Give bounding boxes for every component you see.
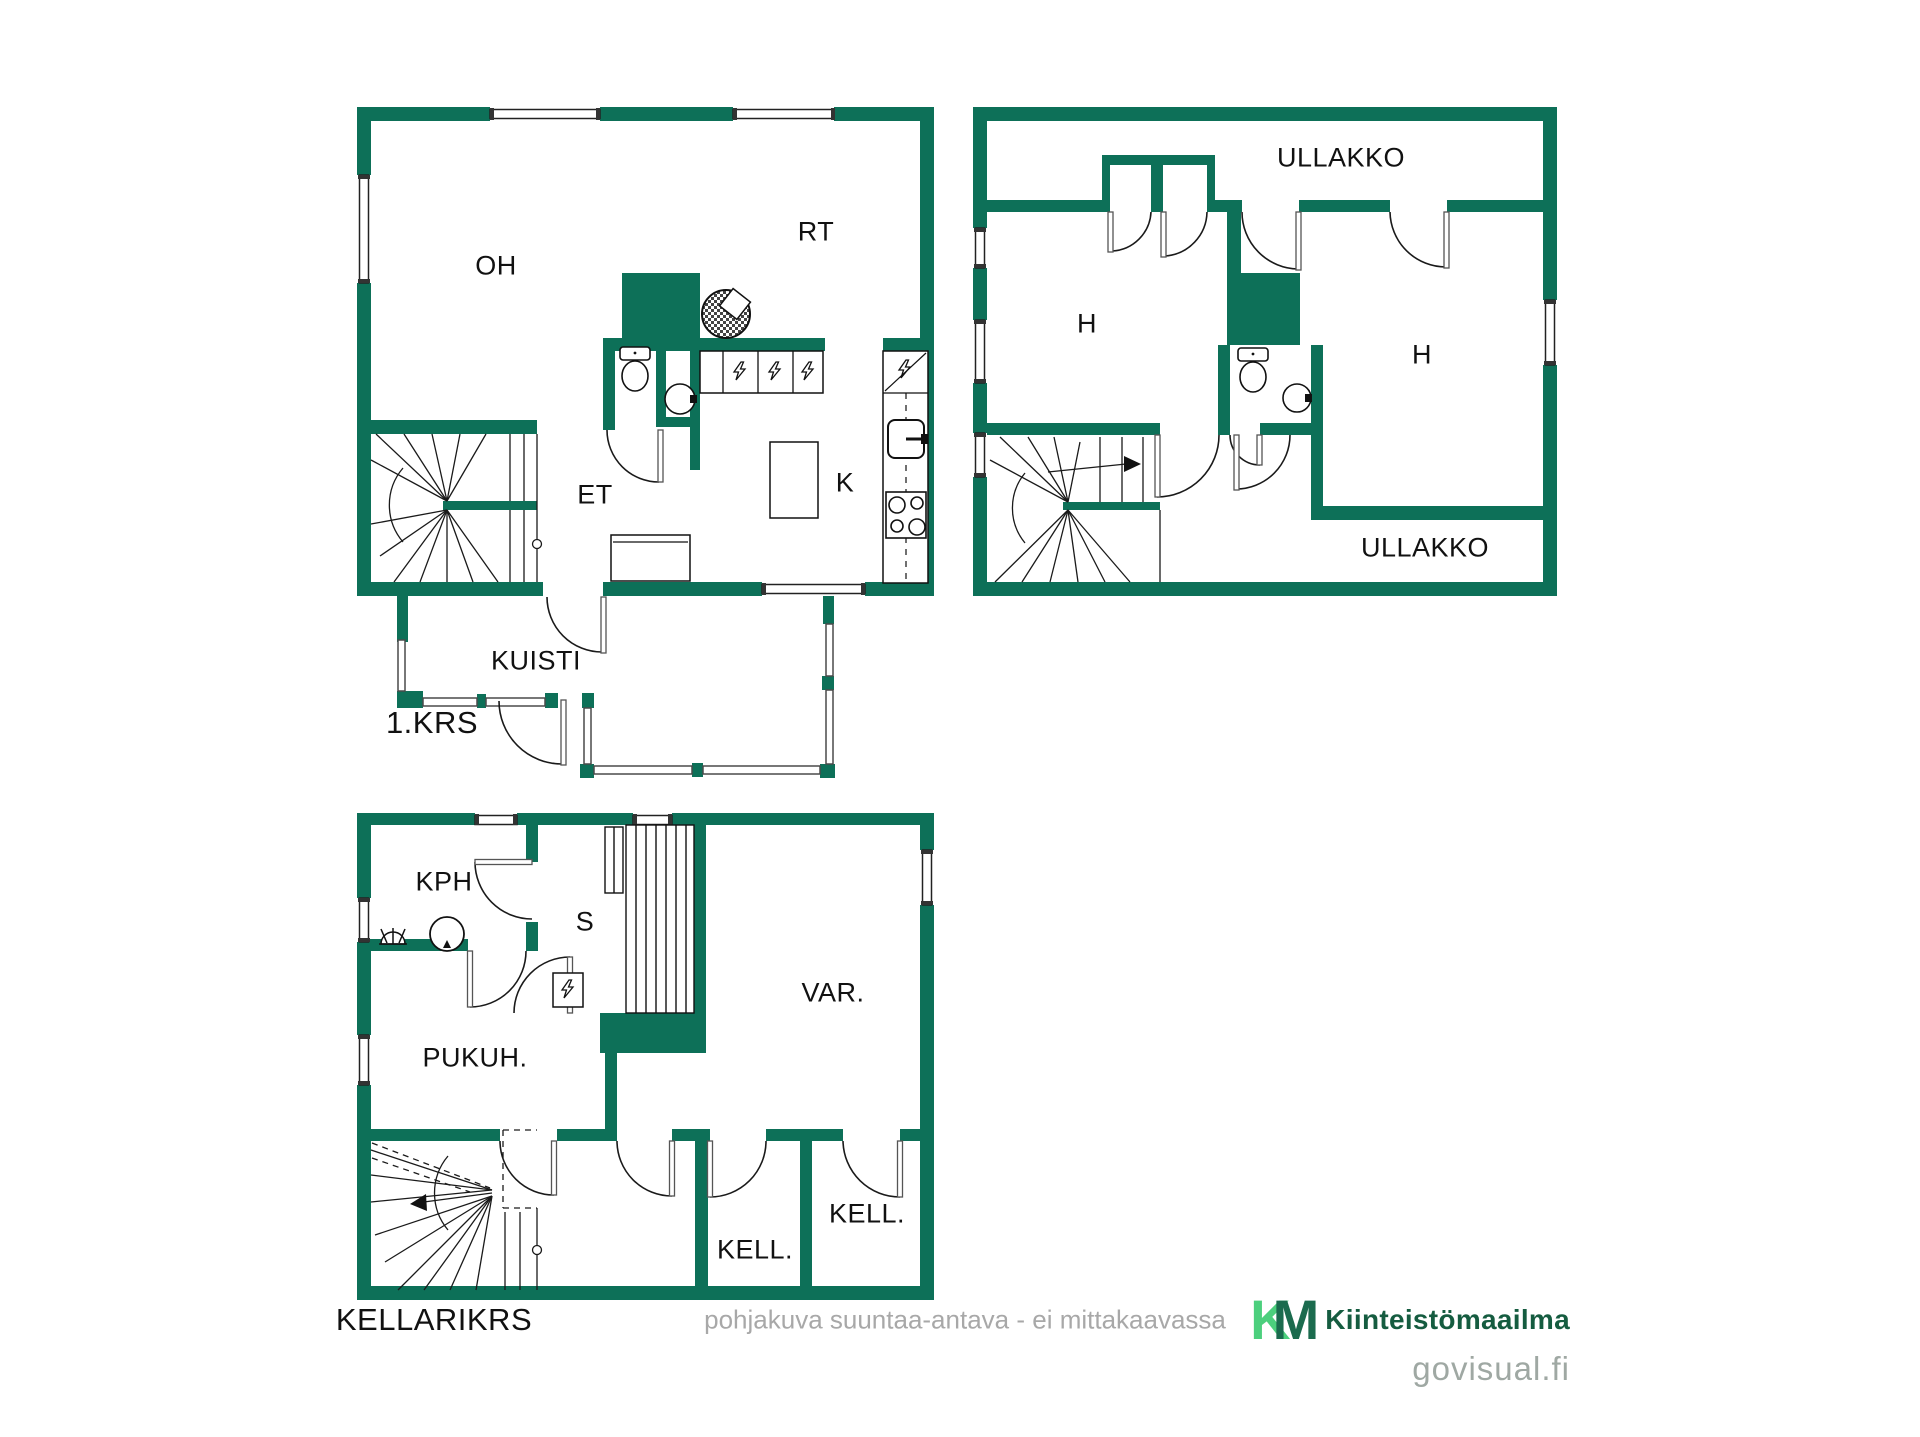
appliance-row	[700, 351, 823, 393]
room-label-h-left: H	[1077, 309, 1097, 340]
stove-burners-icon	[886, 492, 926, 538]
et-closet	[611, 535, 690, 581]
room-label-k: K	[836, 468, 855, 499]
room-label-ullakko-bottom: ULLAKKO	[1361, 533, 1489, 564]
room-label-ullakko-top: ULLAKKO	[1277, 143, 1405, 174]
first-floor-walls	[357, 107, 934, 778]
room-label-s: S	[576, 907, 595, 938]
kitchen-sink-icon	[888, 420, 928, 458]
sauna-stove-icon	[553, 973, 583, 1007]
km-logo-mark-m: M	[1273, 1292, 1320, 1348]
kitchen-table	[770, 442, 818, 518]
room-label-rt: RT	[798, 217, 835, 248]
water-heater-icon	[430, 917, 464, 951]
govisual-watermark: govisual.fi	[1250, 1350, 1570, 1388]
washbasin-icon	[1283, 384, 1312, 412]
fireplace-icon	[702, 289, 750, 338]
room-label-h-right: H	[1412, 340, 1432, 371]
floor-label-kellarikrs: KELLARIKRS	[336, 1302, 532, 1338]
floor-plan-page: OH RT ET K KUISTI 1.KRS ULLAKKO H H ULLA…	[0, 0, 1920, 1437]
porch-railings	[398, 624, 833, 774]
kitchen-counter	[883, 351, 928, 583]
shower-icon	[379, 928, 407, 944]
room-label-kell-small: KELL.	[717, 1235, 793, 1266]
room-label-var: VAR.	[801, 978, 864, 1009]
attic-bath-fixtures	[1238, 348, 1312, 412]
basement-stairs	[371, 1130, 542, 1290]
room-label-et: ET	[577, 480, 613, 511]
floor-plan-drawing	[0, 0, 1920, 1437]
room-label-kuisti: KUISTI	[491, 646, 581, 677]
disclaimer-text: pohjakuva suuntaa-antava - ei mittakaava…	[704, 1305, 1226, 1336]
sauna-benches-icon	[605, 825, 694, 1013]
room-label-pukuh: PUKUH.	[422, 1043, 527, 1074]
first-floor-plan	[357, 107, 934, 778]
attic-floor-plan	[973, 107, 1557, 596]
room-label-kell-large: KELL.	[829, 1199, 905, 1230]
toilet-icon	[1238, 348, 1268, 392]
toilet-icon	[620, 347, 650, 391]
km-logo: KM Kiinteistömaailma govisual.fi	[1250, 1292, 1570, 1388]
room-label-kph: KPH	[415, 867, 472, 898]
room-label-oh: OH	[475, 251, 517, 282]
km-logo-brand-text: Kiinteistömaailma	[1325, 1304, 1570, 1336]
attic-doors	[1108, 212, 1449, 497]
floor-label-1krs: 1.KRS	[386, 705, 478, 741]
